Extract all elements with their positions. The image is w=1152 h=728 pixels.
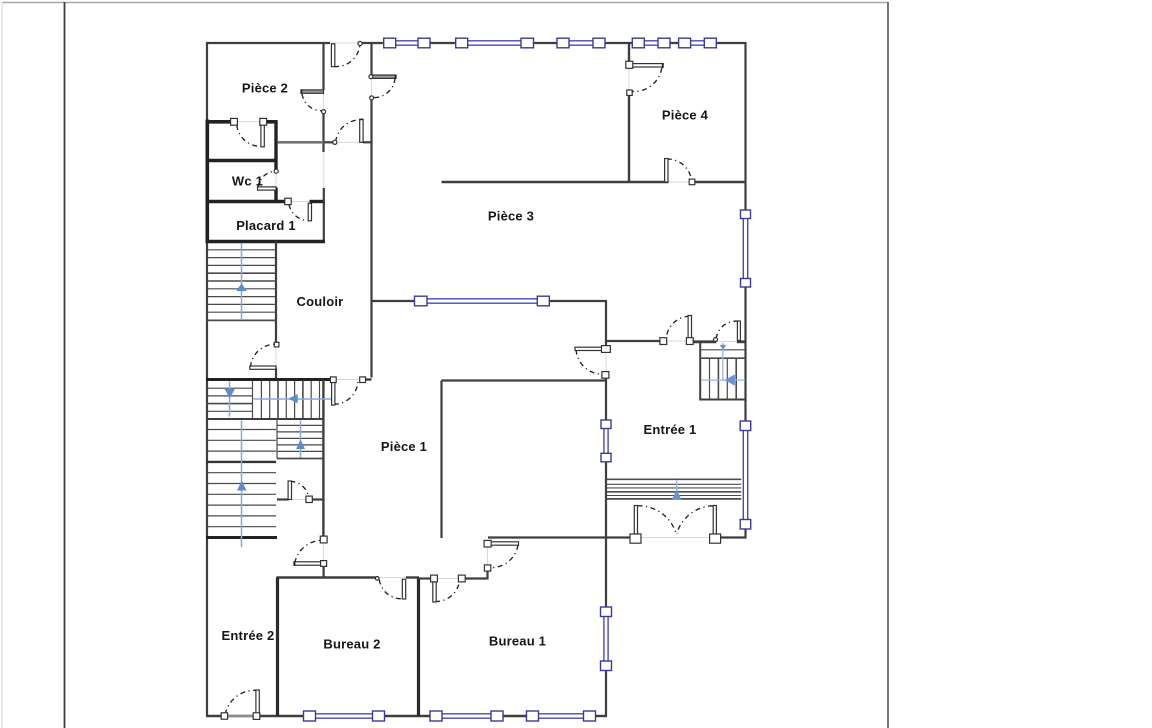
svg-text:Bureau 2: Bureau 2 [323,637,380,652]
svg-text:Placard 1: Placard 1 [236,218,296,233]
svg-text:Entrée 2: Entrée 2 [222,628,275,643]
svg-text:Wc 1: Wc 1 [232,174,263,189]
svg-text:Pièce 3: Pièce 3 [488,209,534,224]
svg-text:Bureau 1: Bureau 1 [489,634,546,649]
svg-text:Pièce 1: Pièce 1 [381,439,427,454]
svg-text:Entrée 1: Entrée 1 [644,422,697,437]
svg-text:Couloir: Couloir [297,294,344,309]
svg-text:Pièce 4: Pièce 4 [662,108,709,123]
svg-text:Pièce 2: Pièce 2 [242,81,288,96]
